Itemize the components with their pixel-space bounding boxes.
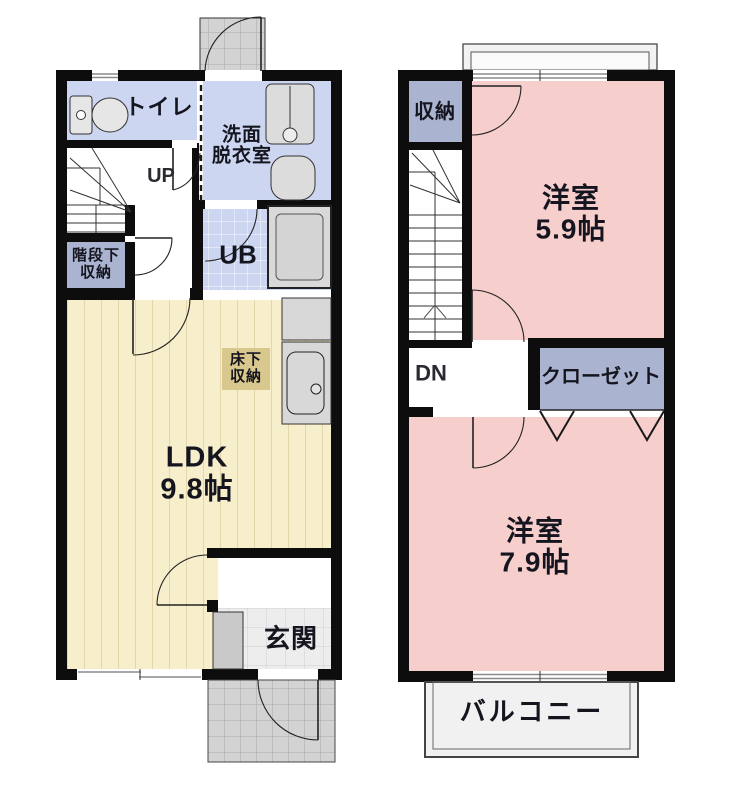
label-understairs-storage: 階段下 収納 — [72, 248, 120, 282]
label-ldk-line1: LDK — [160, 442, 233, 474]
floor-plan-canvas: トイレ 洗面 脱衣室 UP 階段下 収納 UB 床下 収納 LDK 9.8帖 玄… — [0, 0, 731, 800]
label-unit-bath: UB — [219, 240, 257, 269]
entry-hall — [218, 558, 331, 608]
label-room79-line2: 7.9帖 — [500, 547, 571, 578]
back-porch — [200, 18, 265, 71]
label-room59: 洋室 5.9帖 — [536, 183, 607, 246]
label-washroom-line1: 洗面 — [212, 125, 272, 146]
label-balcony: バルコニー — [460, 697, 604, 726]
label-washroom: 洗面 脱衣室 — [212, 125, 272, 168]
entrance-porch — [208, 680, 335, 762]
label-understairs-line1: 階段下 — [72, 248, 120, 265]
label-closet: クローゼット — [541, 366, 661, 388]
floor2-plan — [398, 44, 675, 757]
shoe-cabinet — [213, 612, 243, 669]
faucet — [311, 384, 321, 394]
label-floor-storage: 床下 収納 — [230, 352, 262, 386]
floor-plan-drawing — [0, 0, 731, 800]
label-ldk: LDK 9.8帖 — [160, 442, 233, 507]
toilet-flush — [77, 111, 86, 120]
label-storage2: 収納 — [414, 101, 456, 123]
kitchen-sink — [287, 352, 324, 414]
label-room79: 洋室 7.9帖 — [500, 516, 571, 579]
label-floor-storage-line2: 収納 — [230, 369, 262, 386]
label-room59-line1: 洋室 — [536, 183, 607, 214]
bathtub-inner — [276, 214, 323, 280]
label-understairs-line2: 収納 — [72, 265, 120, 282]
label-room59-line2: 5.9帖 — [536, 214, 607, 245]
label-floor-storage-line1: 床下 — [230, 352, 262, 369]
label-toilet: トイレ — [124, 96, 193, 121]
toilet-bowl — [92, 98, 128, 132]
label-up: UP — [147, 165, 175, 187]
washbasin — [271, 156, 315, 200]
label-washroom-line2: 脱衣室 — [212, 146, 272, 167]
label-dn: DN — [415, 362, 447, 387]
label-room79-line1: 洋室 — [500, 516, 571, 547]
label-ldk-line2: 9.8帖 — [160, 474, 233, 506]
label-genkan: 玄関 — [264, 624, 318, 653]
kitchen-counter — [282, 298, 331, 340]
